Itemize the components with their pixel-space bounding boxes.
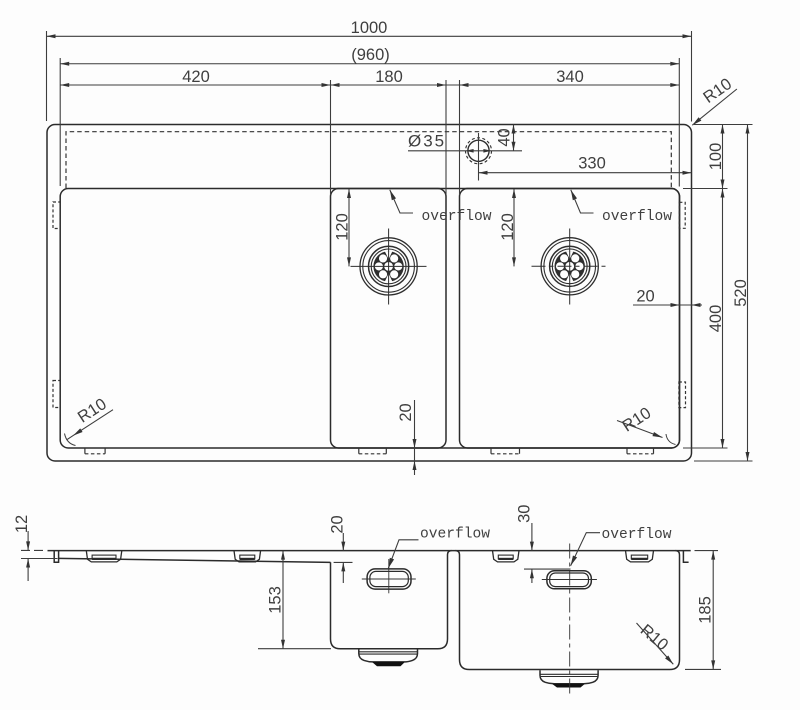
- svg-text:100: 100: [707, 143, 725, 171]
- svg-text:153: 153: [267, 586, 285, 614]
- svg-text:120: 120: [499, 213, 517, 241]
- svg-text:120: 120: [334, 213, 352, 241]
- svg-text:1000: 1000: [351, 19, 388, 37]
- svg-text:overflow: overflow: [602, 209, 672, 225]
- svg-text:420: 420: [182, 68, 210, 86]
- svg-text:330: 330: [578, 155, 606, 173]
- svg-text:40: 40: [496, 128, 514, 146]
- svg-text:20: 20: [329, 515, 347, 533]
- svg-text:520: 520: [732, 279, 750, 307]
- svg-text:20: 20: [397, 403, 415, 421]
- svg-text:20: 20: [636, 288, 654, 306]
- svg-text:340: 340: [556, 68, 584, 86]
- svg-text:30: 30: [516, 505, 534, 523]
- svg-text:R10: R10: [619, 404, 654, 436]
- svg-text:180: 180: [375, 68, 403, 86]
- svg-text:(960): (960): [351, 46, 390, 64]
- svg-text:Ø35: Ø35: [408, 132, 446, 151]
- svg-text:overflow: overflow: [420, 527, 490, 543]
- svg-text:12: 12: [13, 515, 31, 533]
- svg-text:overflow: overflow: [602, 527, 672, 543]
- svg-text:185: 185: [697, 596, 715, 624]
- svg-text:overflow: overflow: [422, 209, 492, 225]
- svg-text:400: 400: [707, 305, 725, 333]
- svg-text:R10: R10: [75, 395, 110, 427]
- svg-text:R10: R10: [700, 75, 735, 107]
- svg-text:R10: R10: [637, 621, 672, 654]
